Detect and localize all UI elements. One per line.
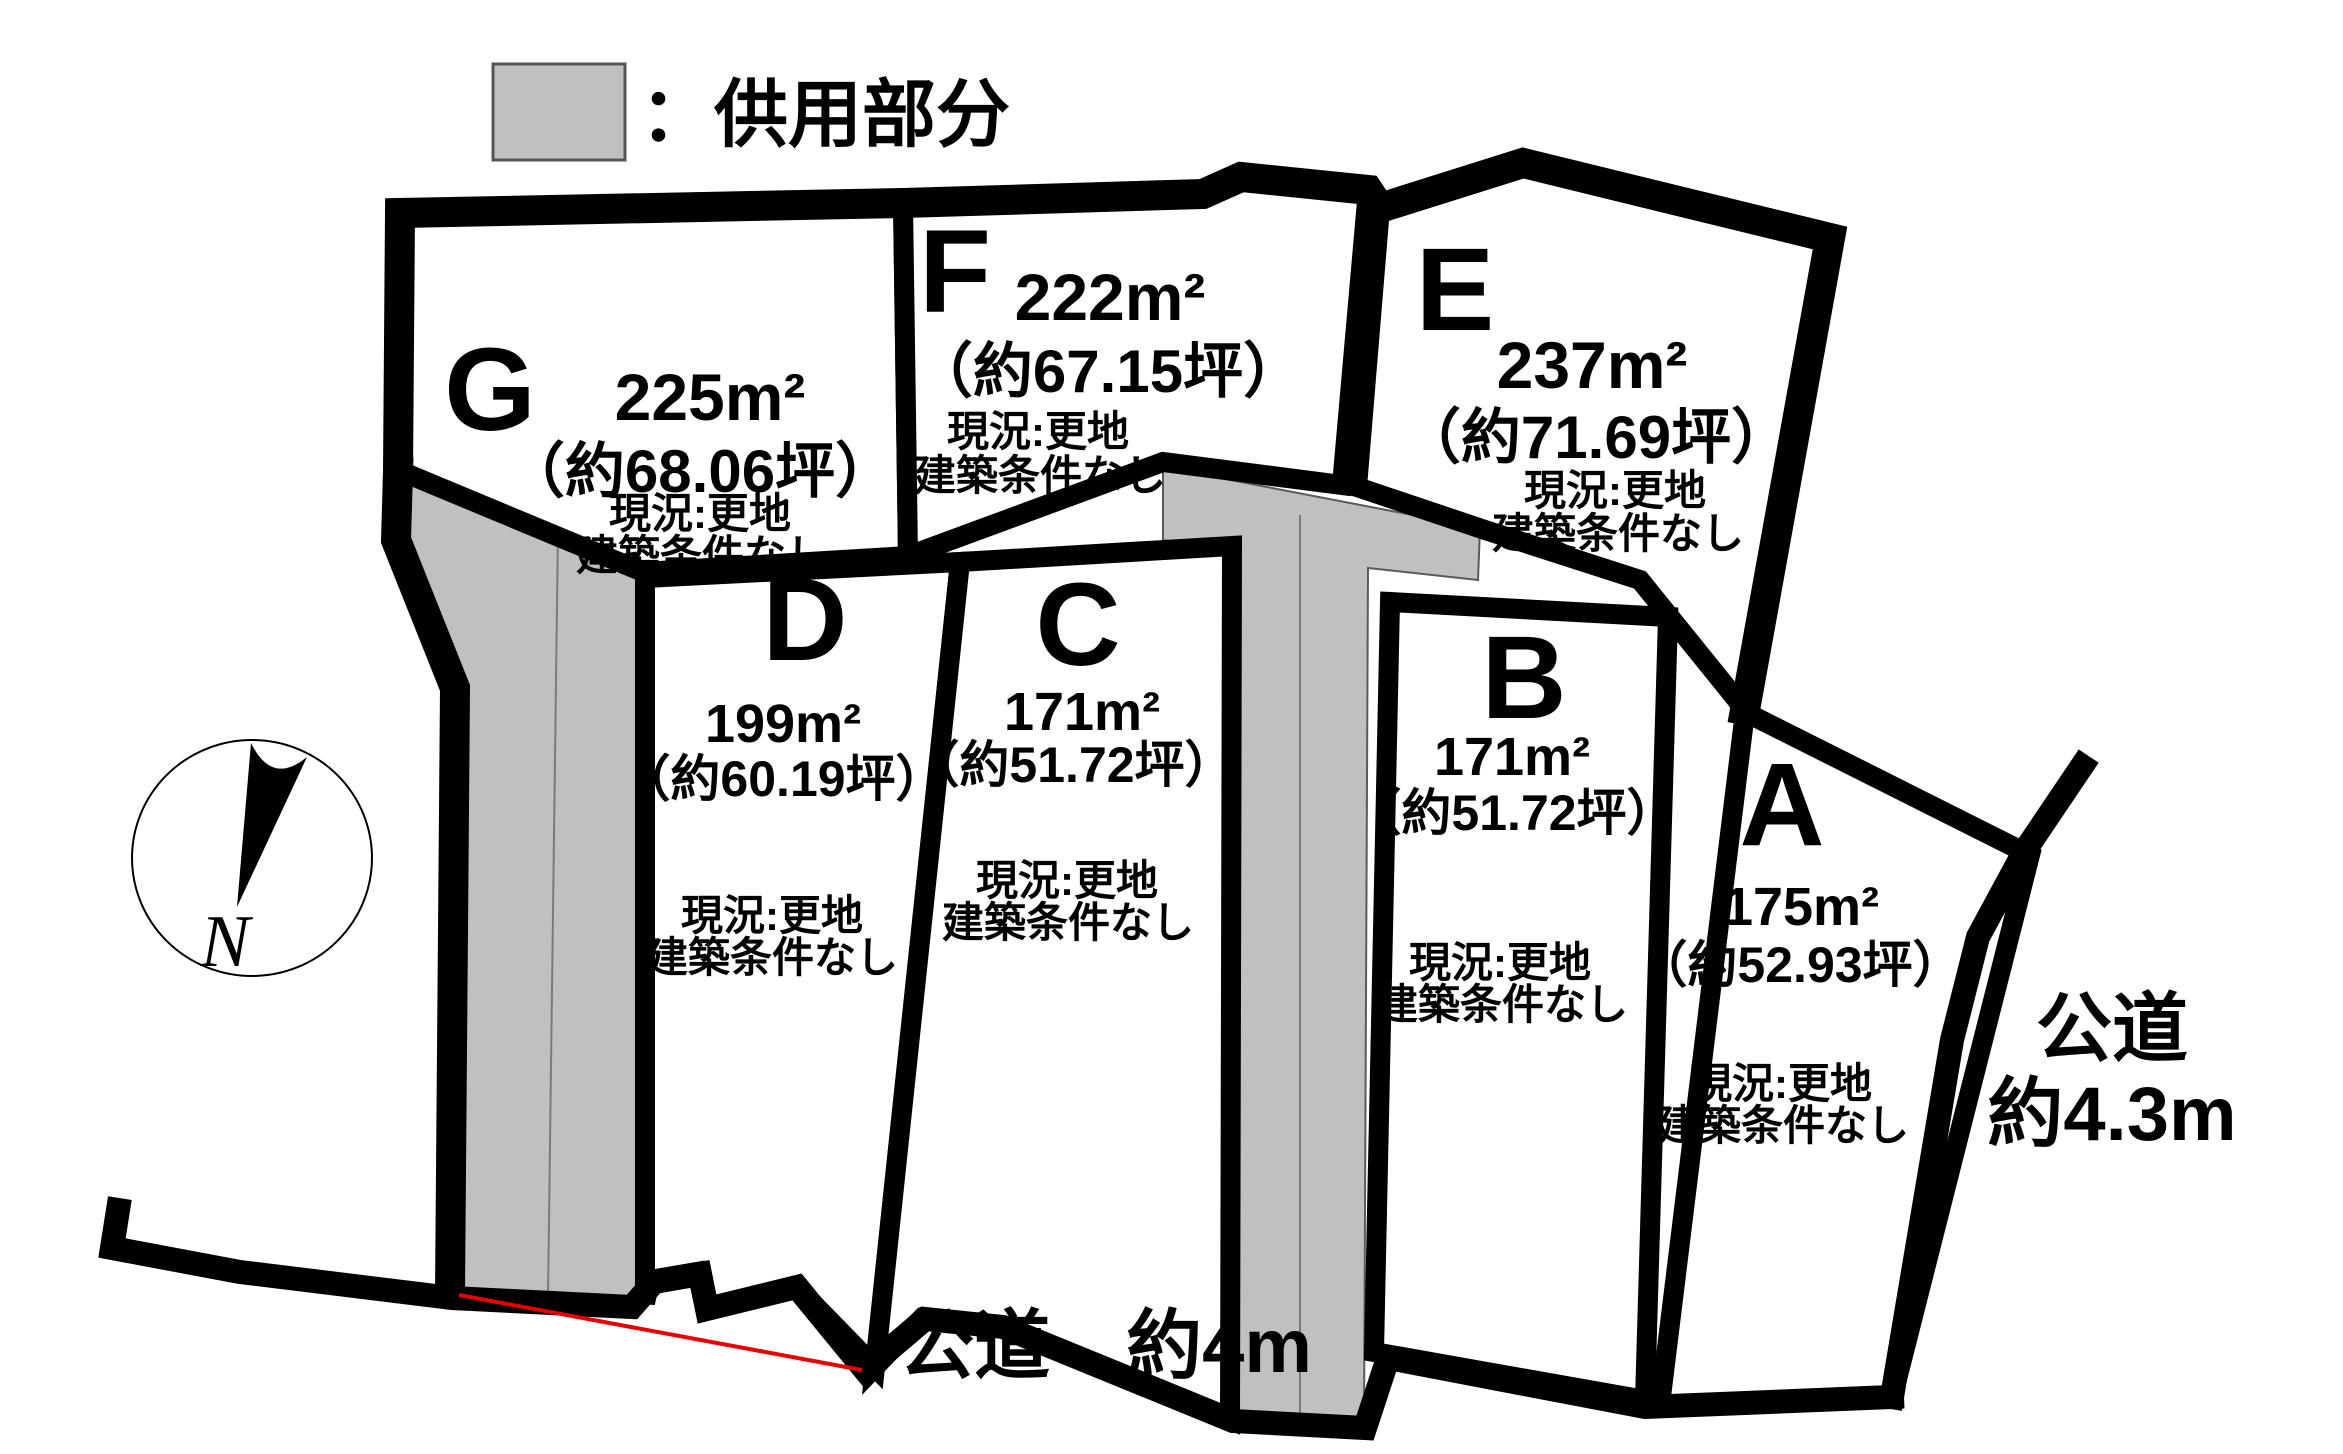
compass: N: [132, 740, 372, 983]
lot-A-status-current: 現況:更地: [1690, 1060, 1872, 1107]
lot-D-status-conditions: 建築条件なし: [646, 934, 898, 981]
lot-polygon-A: [1660, 712, 2030, 1405]
lot-B-area: 171m²: [1434, 727, 1590, 787]
lot-B-letter: B: [1481, 612, 1566, 744]
lot-A-area: 175m²: [1723, 877, 1879, 937]
legend-label: ：供用部分: [640, 73, 1010, 156]
lot-F-area: 222m²: [1015, 260, 1206, 334]
lot-E-status-conditions: 建築条件なし: [1492, 510, 1744, 557]
lot-G-status-current: 現況:更地: [609, 490, 791, 537]
land-plot-diagram: ：供用部分 N G 225m² （約68.06坪） 現況:更地 建築条件なし F…: [0, 0, 2343, 1454]
lot-C-letter: C: [1035, 559, 1120, 691]
lot-G-area: 225m²: [615, 360, 806, 434]
lot-C-area: 171m²: [1004, 682, 1160, 742]
lot-C-status-conditions: 建築条件なし: [942, 899, 1194, 946]
lot-E-tsubo: （約71.69坪）: [1401, 404, 1791, 471]
lot-B-status-conditions: 建築条件なし: [1376, 981, 1628, 1028]
lot-C-tsubo: （約51.72坪）: [909, 737, 1234, 793]
lot-F-status-conditions: 建築条件なし: [914, 452, 1166, 499]
lot-D-area: 199m²: [705, 694, 861, 754]
right-road-label-line2: 約4.3m: [1987, 1072, 2236, 1157]
lot-F-tsubo: （約67.15坪）: [913, 338, 1303, 405]
lot-C-status-current: 現況:更地: [976, 857, 1158, 904]
lot-E-area: 237m²: [1497, 328, 1688, 402]
compass-north-label: N: [199, 901, 253, 983]
lot-G-letter: G: [444, 324, 536, 456]
right-road-label-line1: 公道: [2036, 987, 2188, 1072]
lot-F-letter: F: [919, 206, 991, 338]
lot-B-status-current: 現況:更地: [1409, 939, 1591, 986]
legend: ：供用部分: [493, 64, 1010, 160]
lot-B-tsubo: （約51.72坪）: [1351, 785, 1676, 841]
legend-shared-swatch: [493, 64, 625, 160]
lot-E-status-current: 現況:更地: [1524, 467, 1706, 514]
plot-map-page: ：供用部分 N G 225m² （約68.06坪） 現況:更地 建築条件なし F…: [0, 0, 2343, 1454]
lot-E-letter: E: [1416, 224, 1495, 356]
lot-D-letter: D: [762, 554, 847, 686]
lot-D-status-current: 現況:更地: [681, 892, 863, 939]
lot-F-status-current: 現況:更地: [947, 408, 1129, 455]
lot-A-letter: A: [1739, 739, 1824, 871]
lot-A-tsubo: （約52.93坪）: [1637, 937, 1962, 993]
lot-D-tsubo: （約60.19坪）: [620, 751, 945, 807]
bottom-road-label: 公道 約4m: [898, 1304, 1312, 1389]
lot-A-status-conditions: 建築条件なし: [1657, 1102, 1909, 1149]
